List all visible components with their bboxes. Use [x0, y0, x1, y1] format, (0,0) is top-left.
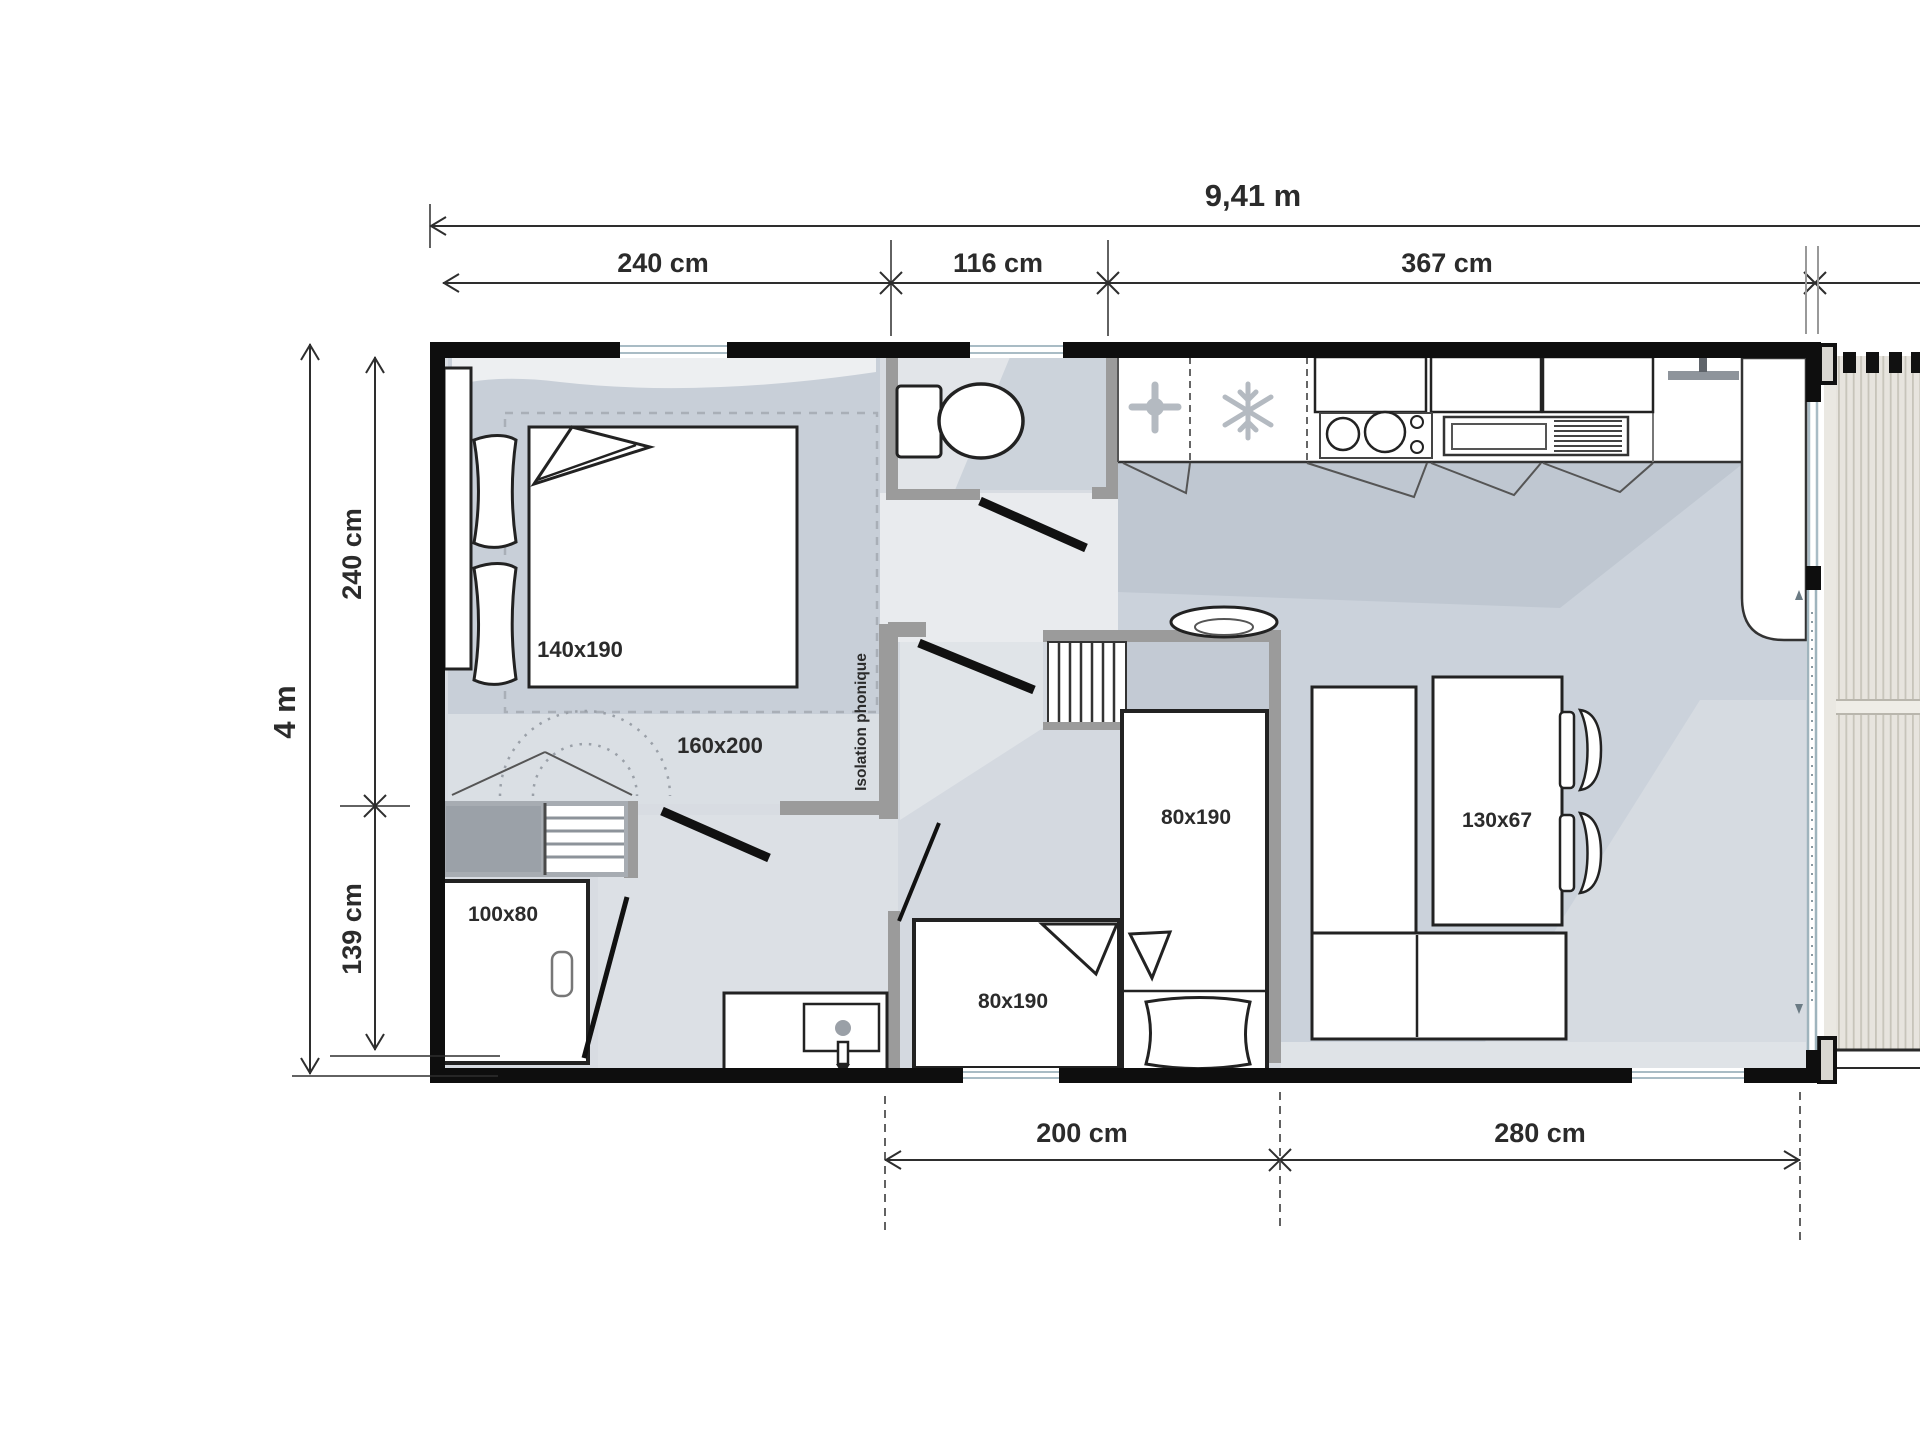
svg-text:280 cm: 280 cm — [1494, 1118, 1586, 1148]
svg-text:140x190: 140x190 — [537, 637, 623, 662]
svg-text:367 cm: 367 cm — [1401, 248, 1493, 278]
svg-text:80x190: 80x190 — [978, 990, 1048, 1013]
svg-text:139 cm: 139 cm — [337, 883, 367, 975]
svg-text:100x80: 100x80 — [468, 903, 538, 926]
svg-text:130x67: 130x67 — [1462, 809, 1532, 832]
svg-text:9,41 m: 9,41 m — [1205, 178, 1302, 213]
svg-text:200 cm: 200 cm — [1036, 1118, 1128, 1148]
svg-text:240 cm: 240 cm — [617, 248, 709, 278]
svg-text:160x200: 160x200 — [677, 733, 763, 758]
svg-text:80x190: 80x190 — [1161, 806, 1231, 829]
svg-text:240 cm: 240 cm — [337, 508, 367, 600]
svg-text:Isolation phonique: Isolation phonique — [853, 653, 870, 791]
svg-text:4 m: 4 m — [267, 685, 302, 738]
svg-text:116 cm: 116 cm — [953, 248, 1043, 278]
